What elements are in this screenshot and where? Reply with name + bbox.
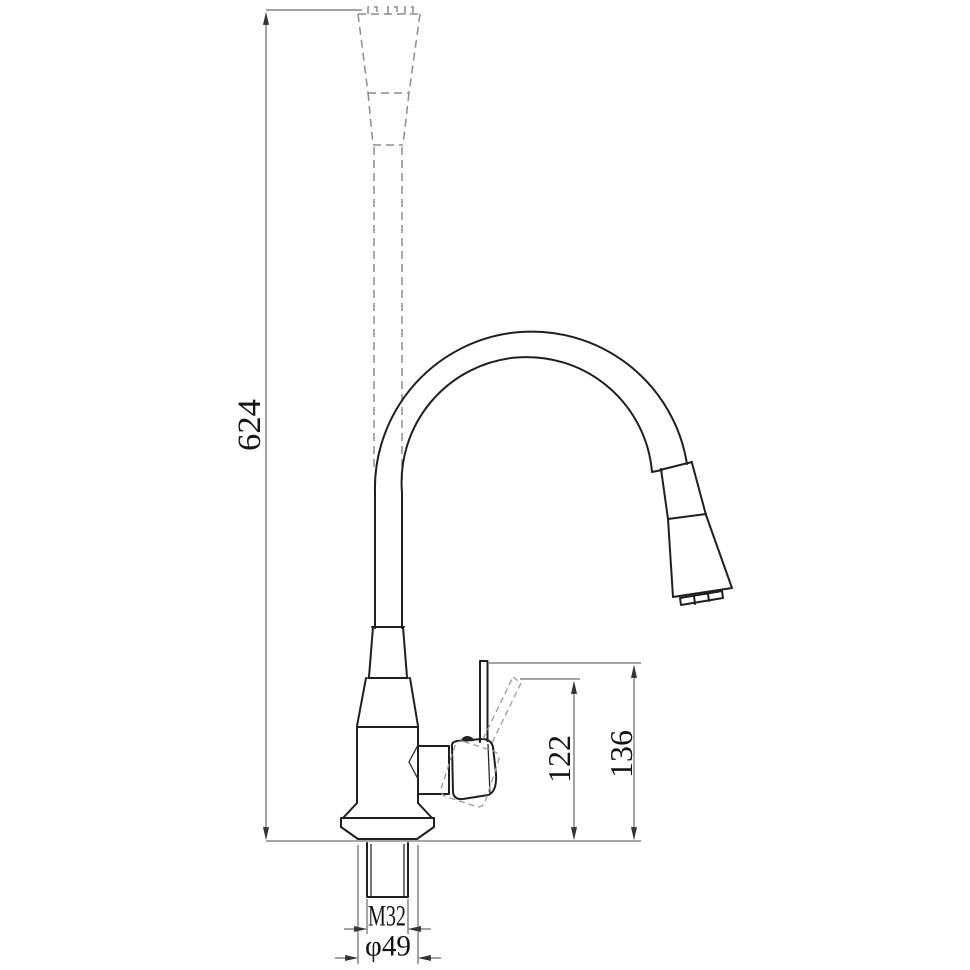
faucet-technical-drawing: 624 122 136 M32 φ49 [0,0,970,970]
gooseneck-spout [375,332,692,628]
dim-label-thread: M32 [368,900,406,933]
dim-handle-tip-height: 122 [520,679,580,839]
handle-lever [480,661,488,742]
spray-head-extended-dashed [358,7,420,483]
spray-head [661,463,732,605]
thread-lines [371,844,404,896]
faucet-body [357,627,418,803]
cartridge-connector [418,746,449,794]
dim-label-handle-tip: 122 [541,735,577,783]
technical-drawing-page: 624 122 136 M32 φ49 [0,0,970,970]
base [341,803,434,839]
hose-dashed [374,147,402,483]
dim-label-base-diameter: φ49 [365,930,411,963]
dim-label-handle-top: 136 [603,730,639,778]
dim-label-overall-height: 624 [232,399,268,451]
threaded-shank [367,843,408,897]
spray-head-collar [660,462,692,470]
handle-assembly [418,661,496,799]
body-groove [409,745,418,779]
dim-overall-height: 624 [232,10,362,839]
